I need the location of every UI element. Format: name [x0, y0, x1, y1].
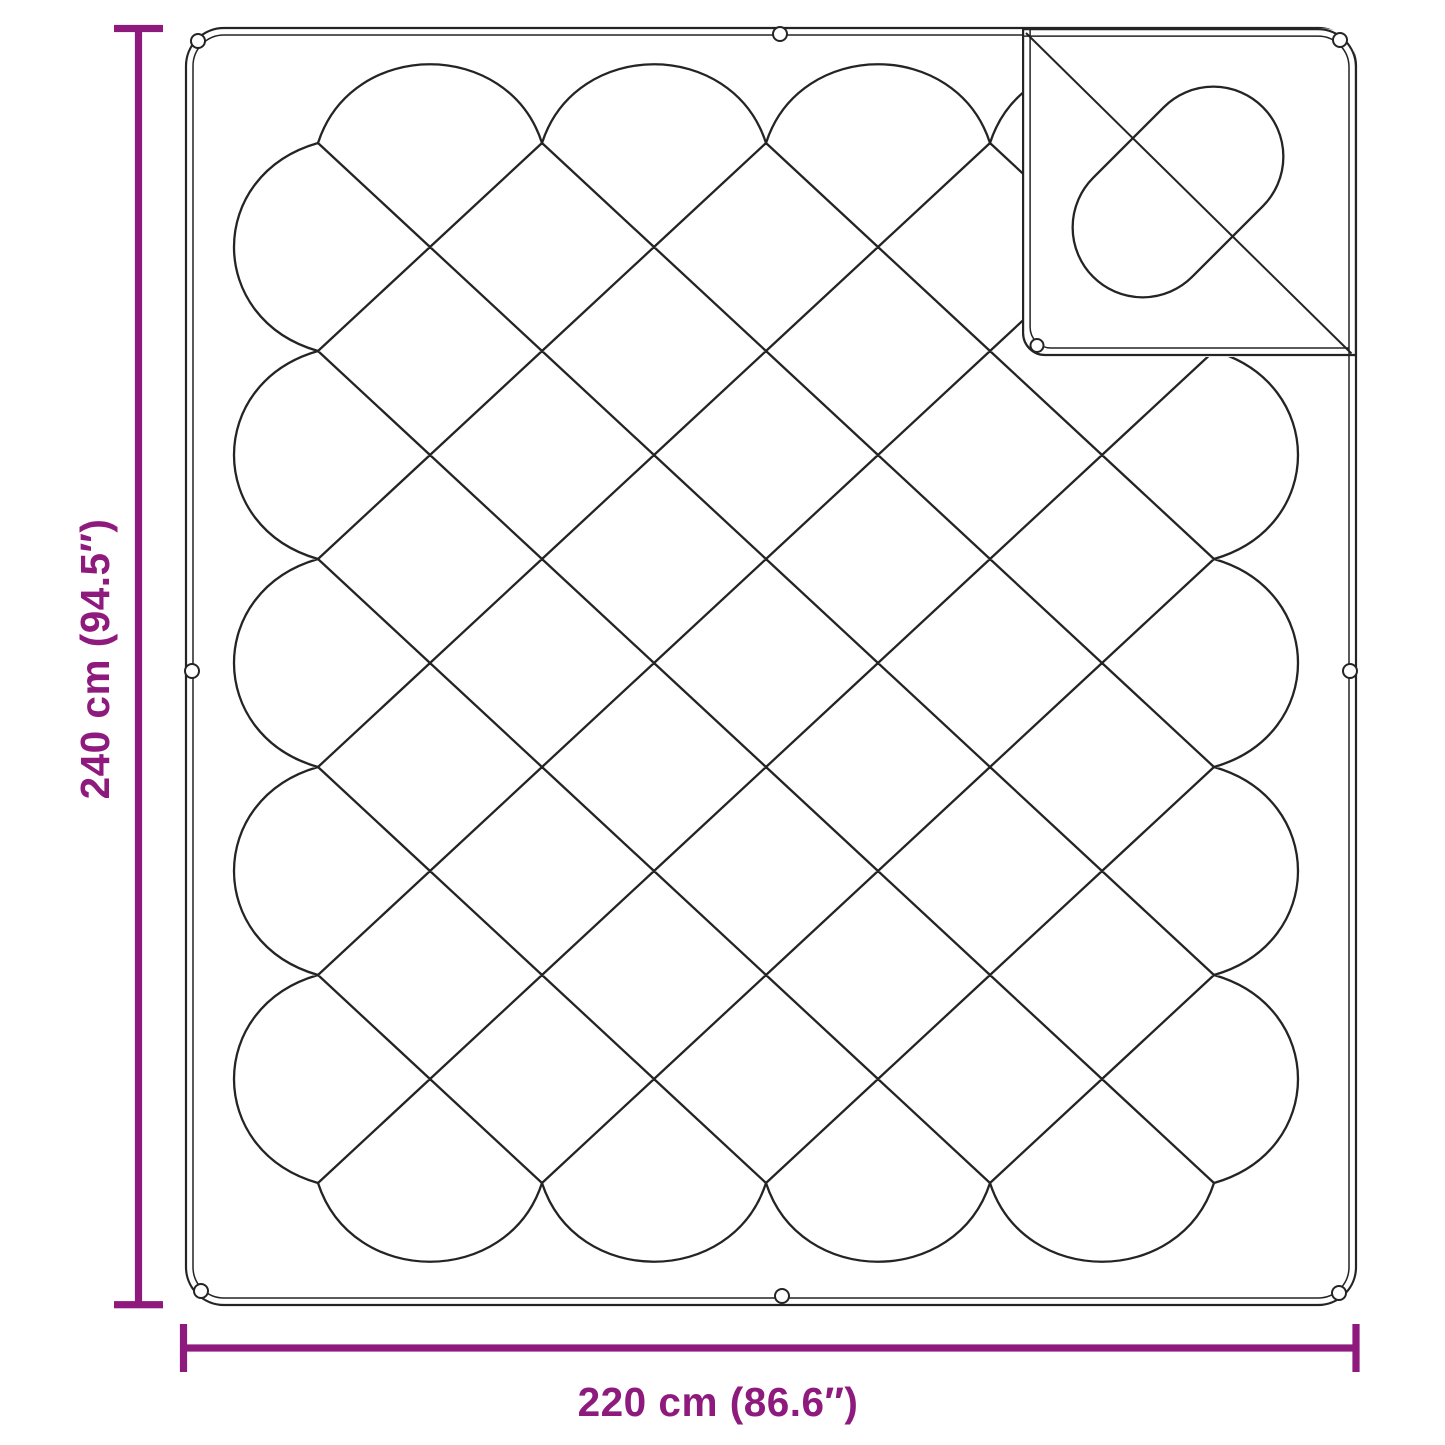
height-dimension-label: 240 cm (94.5″) — [72, 519, 118, 800]
width-dimension: 220 cm (86.6″) — [180, 1324, 1360, 1425]
height-dimension: 240 cm (94.5″) — [72, 25, 163, 1308]
snap-button-bottom-right — [1332, 1286, 1346, 1300]
width-dimension-cap-left — [180, 1324, 187, 1372]
snap-button-top-mid — [773, 27, 787, 41]
folded-corner-flap — [1022, 28, 1356, 357]
width-dimension-cap-right — [1352, 1324, 1359, 1372]
height-dimension-line — [135, 28, 142, 1305]
snap-button-bottom-mid — [775, 1289, 789, 1303]
height-dimension-cap-top — [114, 25, 163, 32]
snap-button-top-left — [191, 34, 205, 48]
width-dimension-label: 220 cm (86.6″) — [578, 1379, 859, 1425]
snap-button-left-mid — [185, 664, 199, 678]
height-dimension-cap-bottom — [114, 1301, 163, 1308]
snap-button-flap-bottom-left — [1031, 339, 1044, 352]
snap-button-right-mid — [1343, 664, 1357, 678]
width-dimension-line — [183, 1344, 1356, 1351]
diagram-canvas: 240 cm (94.5″) 220 cm (86.6″) — [0, 0, 1445, 1445]
snap-button-bottom-left — [194, 1284, 208, 1298]
snap-button-flap-top-right — [1333, 33, 1347, 47]
product-dimension-diagram: 240 cm (94.5″) 220 cm (86.6″) — [0, 0, 1445, 1445]
